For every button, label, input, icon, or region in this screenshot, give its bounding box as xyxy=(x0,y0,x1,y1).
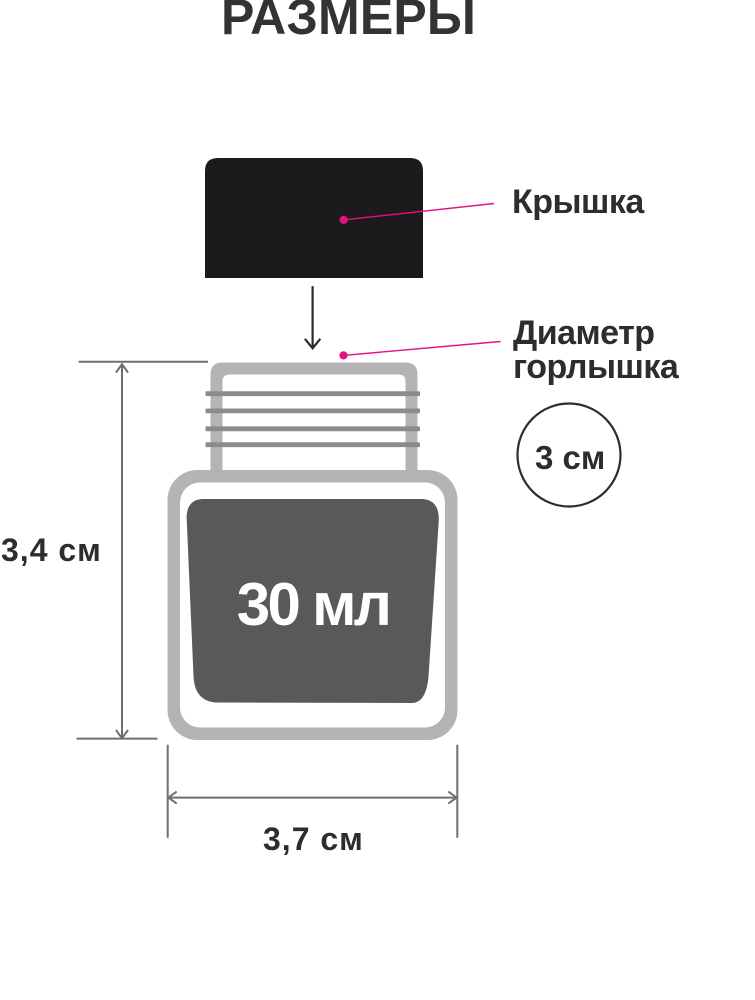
svg-text:30 мл: 30 мл xyxy=(237,571,389,638)
